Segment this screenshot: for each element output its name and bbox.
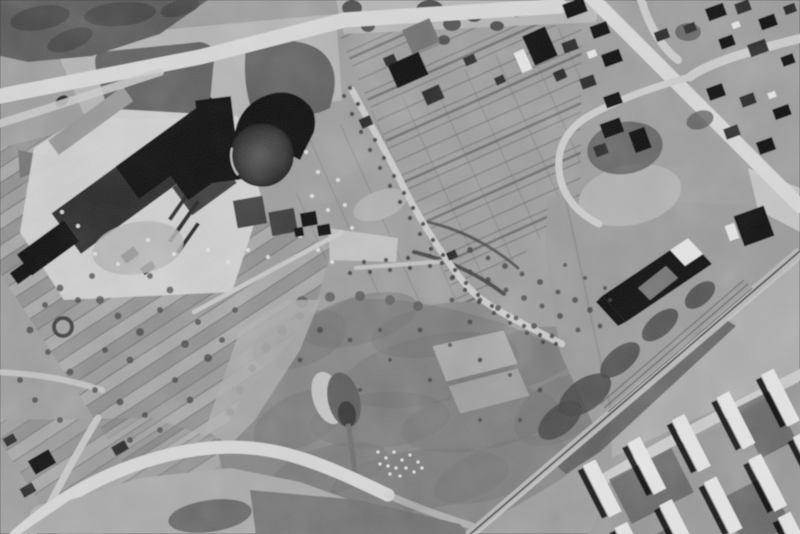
aerial-photograph bbox=[0, 0, 800, 534]
aerial-photo-stage bbox=[0, 0, 800, 534]
film-grain-overlay bbox=[0, 0, 800, 534]
